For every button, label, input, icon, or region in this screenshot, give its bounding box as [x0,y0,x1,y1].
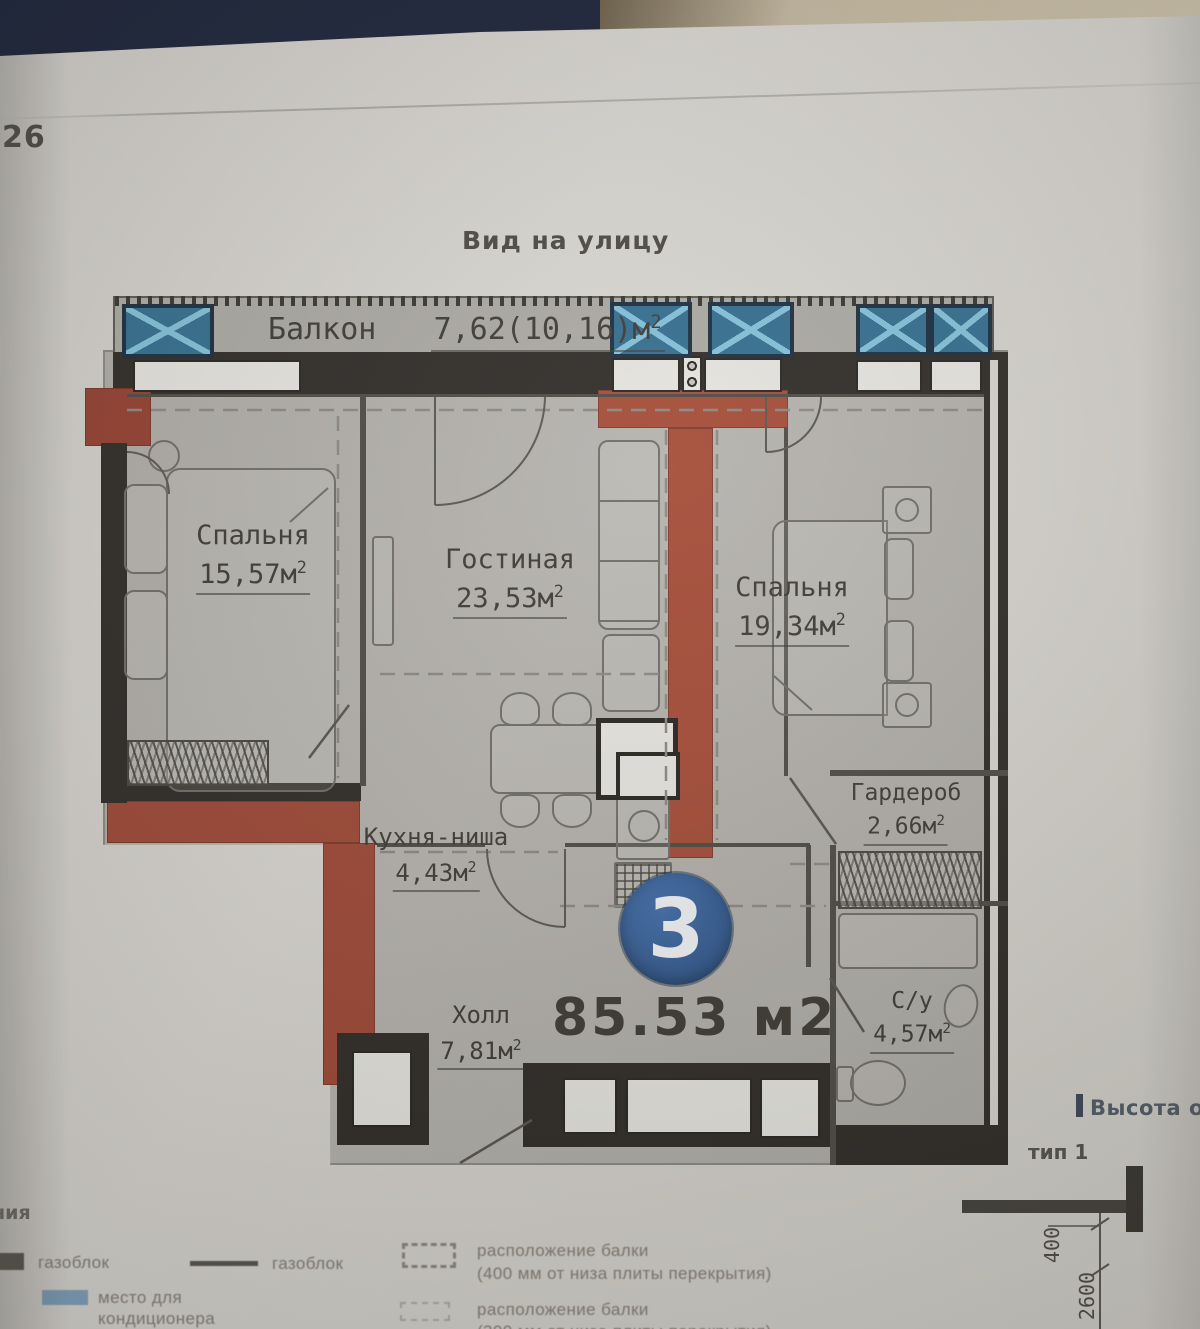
dimension-2600: 2600 [1075,1261,1099,1329]
legend-swatch-ac-place [42,1290,88,1305]
room-name: Балкон [268,312,376,347]
room-name: Кухня-ниша [364,824,509,852]
stool [148,440,180,472]
hall-window-2 [626,1078,752,1134]
beam-section-vertical [1126,1166,1143,1232]
room-name: Спальня [196,520,310,551]
pillow [124,590,168,680]
legend-label-gasblock-1: газоблок [38,1253,109,1273]
chair [500,692,540,726]
armchair [602,634,660,712]
room-name: Спальня [735,572,849,603]
legend-swatch-beam-300 [400,1302,450,1321]
bathroom-bottom-wall [830,1125,1008,1165]
room-label-hall: Холл 7,81м2 [437,1002,524,1070]
legend-label-gasblock-2: газоблок [272,1254,343,1274]
closet-hatch-bedroom1 [127,740,269,786]
type-label: тип 1 [1028,1140,1088,1164]
lamp [895,693,919,717]
unit-number: 3 [647,882,704,977]
paper-sheet: 26 Вид на улицу [0,0,1200,1329]
vent-shaft-small [616,752,680,800]
floor-plan-photo: 26 Вид на улицу [0,0,1200,1329]
ac-unit-icon [708,302,794,358]
room-label-kitchen: Кухня-ниша 4,43м2 [364,824,509,892]
room-area: 23,53м2 [453,582,567,619]
partition-kitchen-hall-2 [565,843,810,847]
room-label-bathroom: С/у 4,57м2 [870,988,954,1054]
room-name: Гостиная [445,544,575,575]
sink-bowl [628,810,660,842]
chair [552,794,592,828]
pillow [884,538,914,600]
room-label-bedroom1: Спальня 15,57м2 [196,520,310,595]
room-area: 2,66м2 [864,813,948,845]
room-area: 7,62(10,16)м2 [431,312,665,352]
window-height-icon [1076,1094,1083,1117]
room-label-wardrobe: Гардероб 2,66м2 [851,780,962,846]
room-area: 15,57м2 [196,558,310,595]
lamp [895,498,919,522]
legend-label-beam400-line2: (400 мм от низа плиты перекрытия) [477,1264,772,1284]
page-number: 26 [2,120,46,155]
ac-unit-icon [856,304,930,356]
kitchen-sink-unit [616,794,670,860]
room-name: С/у [870,988,954,1014]
legend-label-beam300-line1: расположение балки [477,1300,649,1320]
window-height-label: Высота окон [1090,1096,1200,1120]
legend-label-ac-place-line2: кондиционера [98,1309,215,1329]
room-label-living: Гостиная 23,53м2 [445,544,575,619]
bathroom-counter [838,913,978,969]
pillow [124,484,168,574]
window-left [133,360,301,392]
ac-unit-icon [122,304,214,358]
room-area: 19,34м2 [735,610,849,647]
total-area: 85.53 м2 [552,988,837,1048]
room-name: Гардероб [851,780,962,806]
window-right-2 [930,360,982,392]
room-label-balcony: Балкон 7,62(10,16)м2 [268,312,665,347]
paper-crease-line [0,81,1200,120]
room-name: Холл [437,1002,524,1030]
legend-label-beam300-line2: (300 мм от низа плиты перекрытия) [477,1322,772,1329]
window-mid-2 [704,358,782,392]
room-area: 4,57м2 [870,1021,954,1053]
tv-unit [372,536,394,646]
legend-label-ac-place-line1: место для [98,1288,182,1308]
window-right-1 [856,360,922,392]
room-label-bedroom2: Спальня 19,34м2 [735,572,849,647]
nightstand [882,486,932,534]
partition-bedroom1-living [360,396,366,786]
street-view-title: Вид на улицу [462,226,669,255]
unit-number-badge: 3 [620,873,732,985]
room-area: 4,43м2 [392,859,479,893]
legend-swatch-gasblock-line [190,1261,258,1266]
bay-window [352,1051,412,1127]
partition-lobby [806,845,811,967]
partition-under-windows [127,394,984,397]
dimension-400: 400 [1040,1210,1064,1280]
legend-swat​ch-beam-400 [402,1243,456,1268]
closet-hatch-wardrobe [838,851,982,909]
sofa [598,440,660,630]
partition-bedroom2-bottom [830,770,1008,776]
pillow [884,620,914,682]
window-mid-1 [612,358,680,392]
nightstand [882,682,932,728]
right-window-glass-line [990,360,998,1158]
chair [552,692,592,726]
red-wall-l-bar [107,801,360,843]
hall-window-3 [760,1078,820,1138]
toilet-bowl [850,1060,906,1106]
column-marker [682,356,702,392]
hall-window-1 [563,1078,617,1134]
room-area: 7,81м2 [437,1037,524,1071]
ac-unit-icon [930,304,992,356]
left-edge-cut-text: ния [0,1202,31,1224]
legend-swatch-gasblock-solid [0,1253,24,1270]
legend-label-beam400-line1: расположение балки [477,1241,649,1261]
dining-table [490,724,610,794]
